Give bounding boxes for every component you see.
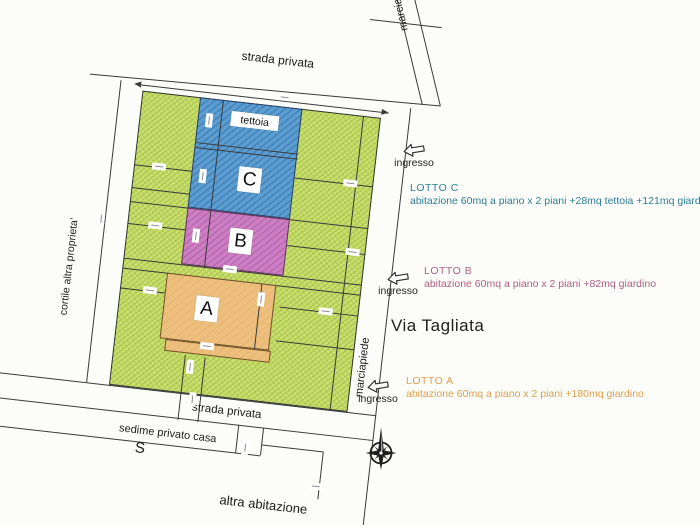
entrance-label: ingresso [388, 157, 440, 169]
via-tagliata-label: Via Tagliata [391, 316, 484, 336]
dimension-marker [308, 482, 323, 491]
corner-band-right-line [413, 0, 441, 106]
compass-rose-icon [361, 426, 401, 472]
street-top-label: strada privata [226, 47, 329, 72]
sedime-step-line [235, 425, 239, 453]
neighbour-right-line [317, 451, 324, 499]
dimension-arrow-right [381, 109, 389, 116]
dimension-marker [277, 93, 292, 102]
site-plan-scan: strada privata cortile altra proprieta' [0, 0, 700, 525]
entrance-label: ingresso [372, 285, 424, 297]
dimension-marker [152, 162, 167, 171]
neighbour-house-label: altra abitazione [197, 490, 330, 520]
building-c-label: C [237, 166, 263, 193]
building-a-label: A [194, 295, 220, 322]
dimension-marker [200, 342, 215, 351]
dimension-marker [143, 286, 158, 295]
entrance-a: ingresso [352, 379, 404, 405]
dimension-marker [222, 265, 237, 274]
lot-a-legend: LOTTO A abitazione 60mq a piano x 2 pian… [406, 375, 644, 401]
lot-c-legend: LOTTO C abitazione 60mq a piano x 2 pian… [410, 182, 700, 208]
sedime-s-label: S [134, 439, 146, 457]
plan-layer: strada privata cortile altra proprieta' [0, 0, 655, 525]
entrance-b: ingresso [372, 271, 424, 297]
entrance-c: ingresso [388, 143, 440, 169]
neighbour-top-line [261, 444, 323, 452]
dimension-marker [343, 179, 358, 188]
lot-c-name: LOTTO C [410, 182, 700, 195]
lot-b-description: abitazione 60mq a piano x 2 piani +82mq … [424, 278, 656, 291]
dimension-marker [241, 440, 250, 455]
building-b-strip-line [204, 211, 211, 268]
dimension-marker [148, 221, 163, 230]
sedime-right-line [260, 428, 264, 456]
courtyard-label: cortile altra proprieta' [58, 138, 90, 316]
lot-b-legend: LOTTO B abitazione 60mq a piano x 2 pian… [424, 265, 656, 291]
lot-b-name: LOTTO B [424, 265, 656, 278]
lot-a-name: LOTTO A [406, 375, 644, 388]
lot-a-description: abitazione 60mq a piano x 2 piani +180mq… [406, 388, 644, 401]
building-b-label: B [228, 228, 254, 255]
dimension-marker [345, 248, 360, 257]
entrance-label: ingresso [352, 393, 404, 405]
dimension-arrow-left [134, 81, 142, 88]
dimension-marker [318, 307, 333, 316]
lot-c-description: abitazione 60mq a piano x 2 piani +28mq … [410, 195, 700, 208]
